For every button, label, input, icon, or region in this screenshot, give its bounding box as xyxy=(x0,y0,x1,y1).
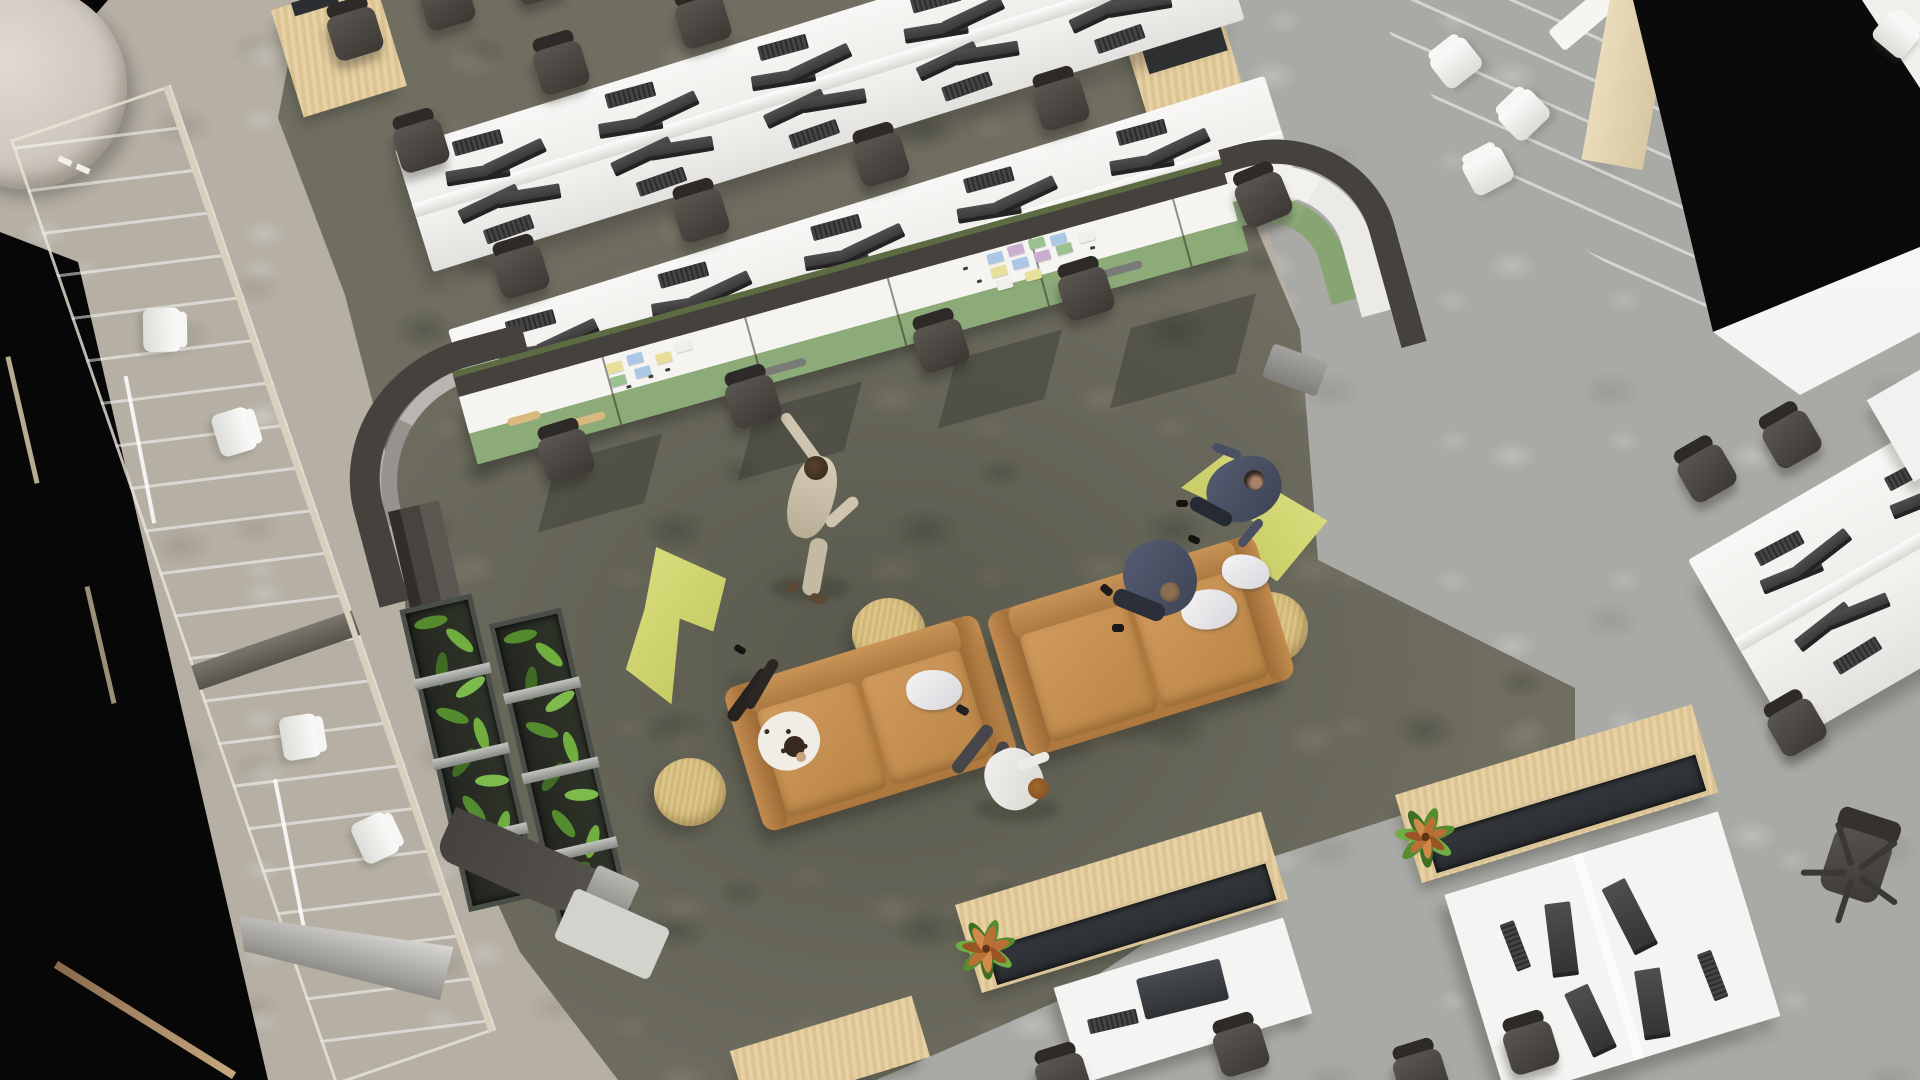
sticky-note xyxy=(606,360,624,374)
glass-table-edge xyxy=(273,779,306,927)
keyboard xyxy=(757,34,809,62)
sticky-note xyxy=(986,251,1004,265)
keyboard xyxy=(810,214,862,242)
sticky-note xyxy=(626,352,644,366)
plant-leaf xyxy=(475,774,509,787)
plant-leaf xyxy=(443,625,477,656)
keyboard xyxy=(1094,24,1146,55)
whiteboard-mark xyxy=(648,374,654,378)
glass-mullion xyxy=(191,610,360,690)
meeting-chair xyxy=(349,810,402,866)
person-shoe xyxy=(1112,624,1124,632)
keyboard xyxy=(963,166,1015,194)
keyboard xyxy=(657,261,709,289)
keyboard xyxy=(1115,118,1167,146)
keyboard xyxy=(788,119,840,150)
chair-star-leg xyxy=(1801,870,1847,876)
whiteboard-mark xyxy=(977,279,983,283)
meeting-chair xyxy=(210,405,259,458)
monitor xyxy=(1107,0,1173,18)
plant-leaf xyxy=(532,639,566,670)
whiteboard-mark xyxy=(963,266,969,270)
panel-seam xyxy=(887,278,908,346)
keyboard xyxy=(1832,636,1882,675)
sticky-note xyxy=(1033,249,1051,263)
sticky-note xyxy=(1007,243,1025,257)
keyboard xyxy=(910,0,962,14)
round-side-table xyxy=(654,758,726,826)
person-shoe xyxy=(1176,500,1188,507)
chair-seat xyxy=(673,0,734,51)
sticky-note xyxy=(990,264,1008,278)
keyboard xyxy=(451,129,503,157)
sticky-note xyxy=(1078,229,1096,243)
keyboard xyxy=(604,81,656,109)
panel-seam xyxy=(1172,199,1193,267)
keyboard xyxy=(1754,530,1805,567)
person-head xyxy=(1160,582,1180,602)
whiteboard-mark xyxy=(665,368,671,372)
plant-leaf xyxy=(502,627,538,646)
trough-slat xyxy=(432,742,510,770)
person-head xyxy=(804,456,828,480)
plant-leaf xyxy=(524,719,560,741)
meeting-chair xyxy=(278,712,322,761)
wood-tray xyxy=(507,410,542,427)
plant-leaf xyxy=(434,705,470,727)
sticky-note xyxy=(674,339,692,353)
person-head xyxy=(1244,470,1264,490)
person-head xyxy=(1028,778,1049,799)
office-aerial-render xyxy=(0,0,1920,1080)
monitor xyxy=(1826,592,1891,630)
plant-leaf xyxy=(548,807,579,841)
plant-leaf xyxy=(564,788,598,801)
meeting-chair xyxy=(143,307,182,352)
keyboard xyxy=(941,71,993,102)
sticky-note xyxy=(996,277,1014,291)
whiteboard-mark xyxy=(1090,246,1096,250)
trough-slat xyxy=(521,756,599,784)
sticky-note xyxy=(1024,268,1042,282)
sticky-note xyxy=(1012,256,1030,270)
sticky-note xyxy=(609,374,627,388)
sticky-note xyxy=(655,351,673,365)
plant-leaf xyxy=(413,613,449,632)
person-bun xyxy=(796,752,806,762)
whiteboard-mark xyxy=(626,385,632,389)
